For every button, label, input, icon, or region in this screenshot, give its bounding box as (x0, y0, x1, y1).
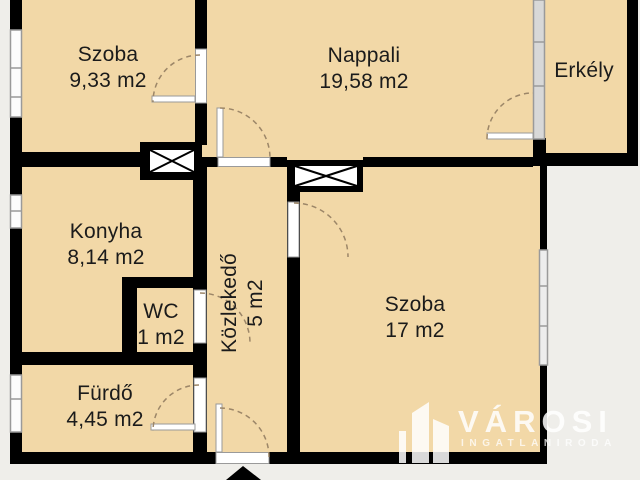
wall-balcony-right (627, 0, 638, 166)
room-area: 1 m2 (137, 325, 185, 351)
window-balcony-glazing (534, 0, 545, 139)
floor-plan: Szoba 9,33 m2 Nappali 19,58 m2 Erkély Ko… (0, 0, 640, 480)
entrance-arrow-icon (226, 466, 261, 480)
watermark-tagline: INGATLANIRODA (461, 438, 617, 449)
door-leaf-nappali (217, 108, 223, 157)
room-name: WC (137, 299, 185, 325)
watermark-brand: VÁROSI (458, 404, 613, 440)
shaft-symbol-right (287, 160, 363, 192)
room-label-wc: WC 1 m2 (137, 299, 185, 351)
room-name: Közlekedő (217, 253, 243, 353)
room-area: 4,45 m2 (66, 407, 143, 433)
room-area: 8,14 m2 (67, 245, 144, 271)
wall-wc-top (122, 277, 207, 288)
door-opening-szoba2 (288, 202, 299, 257)
room-label-nappali: Nappali 19,58 m2 (319, 43, 408, 95)
door-leaf-furdo (151, 424, 195, 430)
wall-nappali-bottom-a (202, 157, 218, 167)
room-label-kozlekedo: Közlekedő 5 m2 (217, 253, 269, 353)
door-leaf-balcony (487, 133, 533, 139)
room-area: 5 m2 (243, 253, 269, 353)
room-label-szoba2: Szoba 17 m2 (385, 292, 446, 344)
wall-furdo-top (10, 352, 207, 365)
room-area: 17 m2 (385, 318, 446, 344)
shaft-symbol-left (140, 142, 202, 180)
door-opening-nappali (218, 158, 270, 167)
room-name: Fürdő (66, 381, 143, 407)
wall-balcony-bottom (533, 153, 638, 166)
room-name: Szoba (385, 292, 446, 318)
room-area: 9,33 m2 (69, 68, 146, 94)
room-area: 19,58 m2 (319, 69, 408, 95)
window-szoba2 (540, 250, 548, 365)
window-szoba1 (11, 30, 22, 117)
door-opening-furdo (194, 378, 206, 432)
window-furdo (11, 375, 22, 432)
door-leaf-entrance (216, 404, 222, 452)
wall-nappali-bottom-b (270, 157, 287, 167)
room-label-erkely: Erkély (554, 58, 614, 84)
room-label-konyha: Konyha 8,14 m2 (67, 219, 144, 271)
door-opening-entrance (216, 453, 269, 464)
room-label-furdo: Fürdő 4,45 m2 (66, 381, 143, 433)
wall-nappali-bottom-c (363, 157, 533, 167)
room-name: Konyha (67, 219, 144, 245)
wall-wc-left (122, 277, 137, 365)
room-label-szoba1: Szoba 9,33 m2 (69, 42, 146, 94)
door-opening-wc (194, 290, 206, 343)
door-opening-szoba1 (196, 49, 207, 103)
wall-outer-bottom (10, 452, 547, 464)
room-name: Nappali (319, 43, 408, 69)
wall-szoba1-konyha (10, 152, 142, 167)
door-leaf-szoba1 (152, 96, 195, 102)
room-name: Erkély (554, 58, 614, 84)
room-name: Szoba (69, 42, 146, 68)
